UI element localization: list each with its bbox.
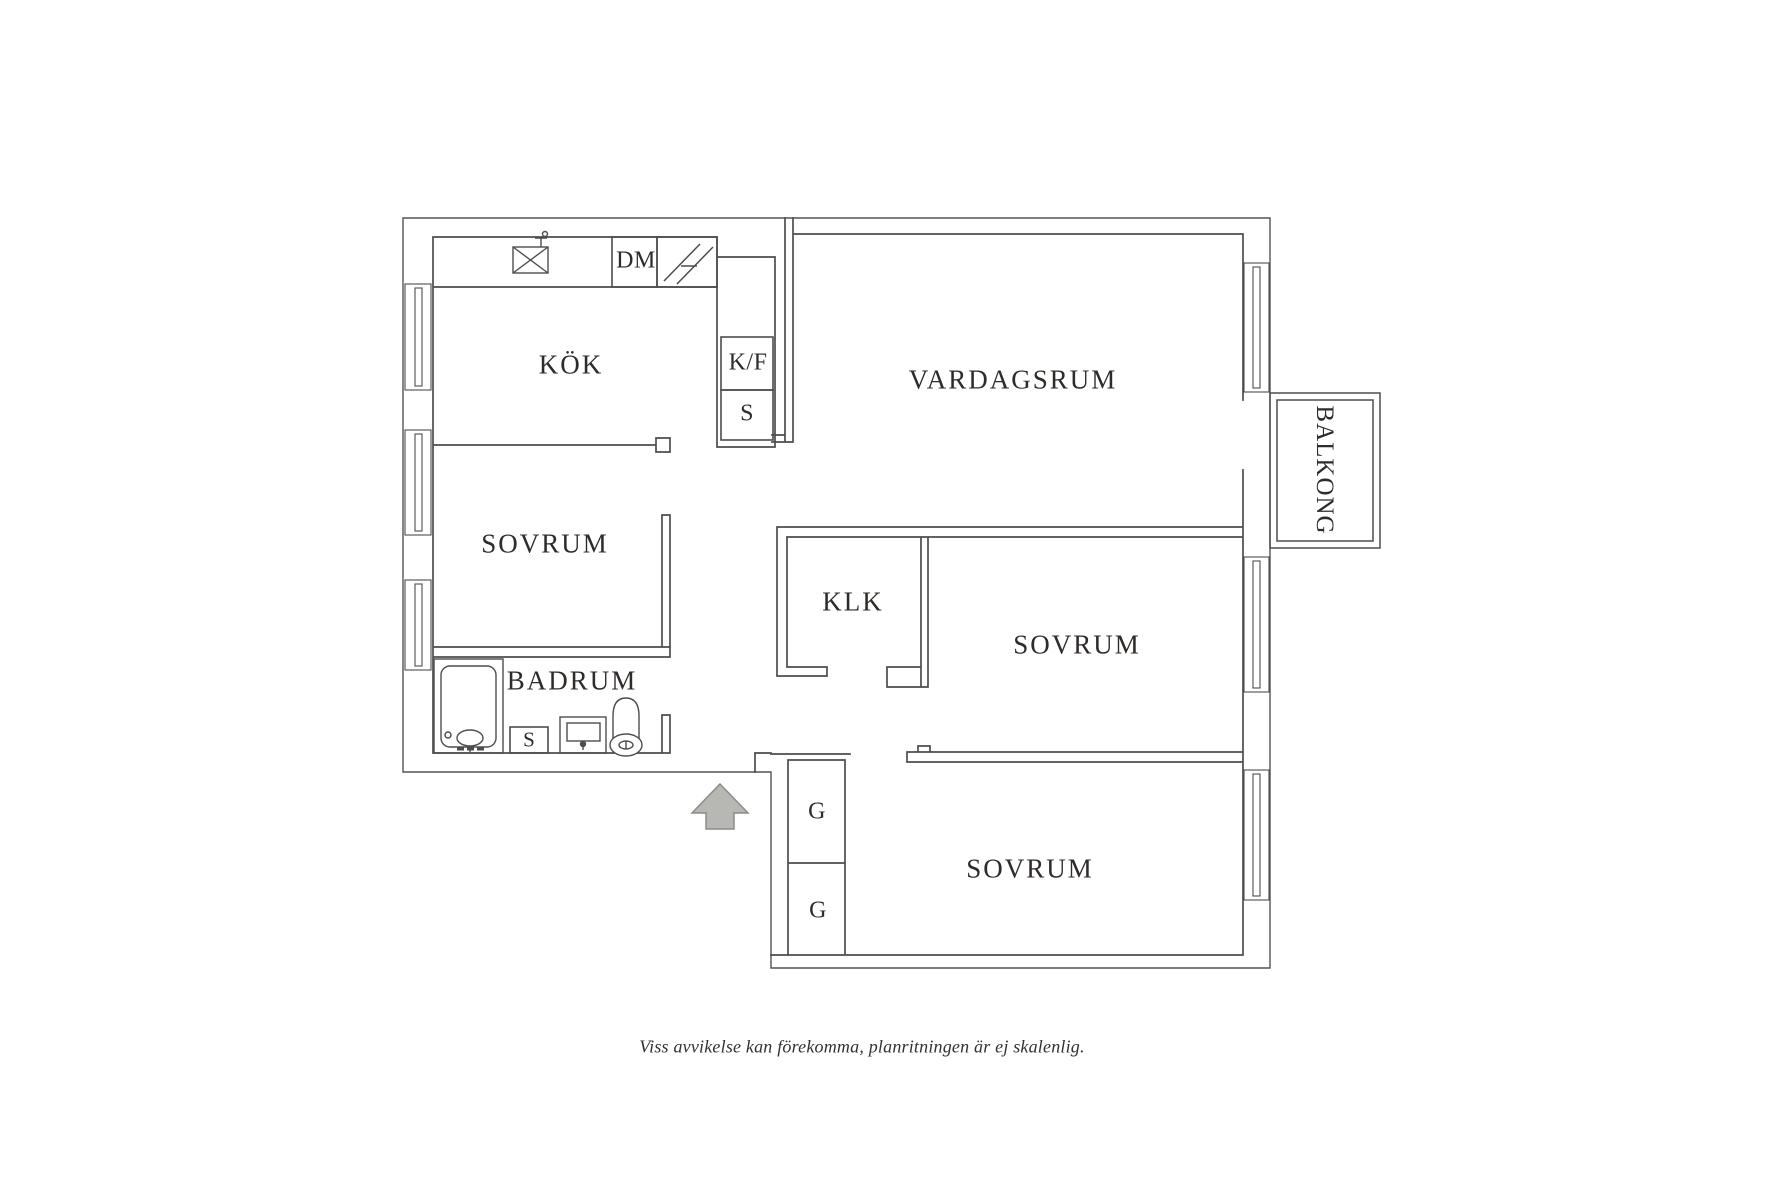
room-label-vardagsrum: VARDAGSRUM [909,365,1118,396]
window-icons-left [405,284,431,670]
shower-icon [434,659,503,753]
fixture-label-cabinet-kitchen: S [740,401,754,428]
room-label-kok: KÖK [539,350,604,381]
entrance-arrow-icon [692,784,748,829]
fixture-label-wardrobe-top: G [808,799,826,826]
window-icon [1244,557,1269,692]
washbasin-icon [560,717,606,753]
fixture-label-cabinet-badrum: S [523,728,535,753]
fixture-label-wardrobe-bottom: G [809,898,827,925]
window-icons-right [1244,263,1269,900]
fixture-label-dishwasher: DM [616,248,656,275]
room-label-badrum: BADRUM [507,666,638,697]
window-icon [1244,770,1269,900]
window-icon [405,284,431,390]
room-label-balkong: BALKONG [1310,405,1338,534]
fixture-label-fridge-freezer: K/F [729,350,768,377]
toilet-icon [610,698,642,756]
window-icon [405,430,431,535]
room-label-sovrum-bottom: SOVRUM [966,854,1094,885]
room-label-sovrum-left: SOVRUM [481,529,609,560]
stove-icon [664,244,713,284]
window-icon [1244,263,1269,392]
window-icon [405,580,431,670]
room-label-sovrum-middle: SOVRUM [1013,630,1141,661]
disclaimer-text: Viss avvikelse kan förekomma, planritnin… [639,1037,1084,1058]
floor-plan-drawing [0,0,1780,1187]
room-label-klk: KLK [822,587,884,618]
floor-plan-page: KÖK VARDAGSRUM SOVRUM BADRUM KLK SOVRUM … [0,0,1780,1187]
